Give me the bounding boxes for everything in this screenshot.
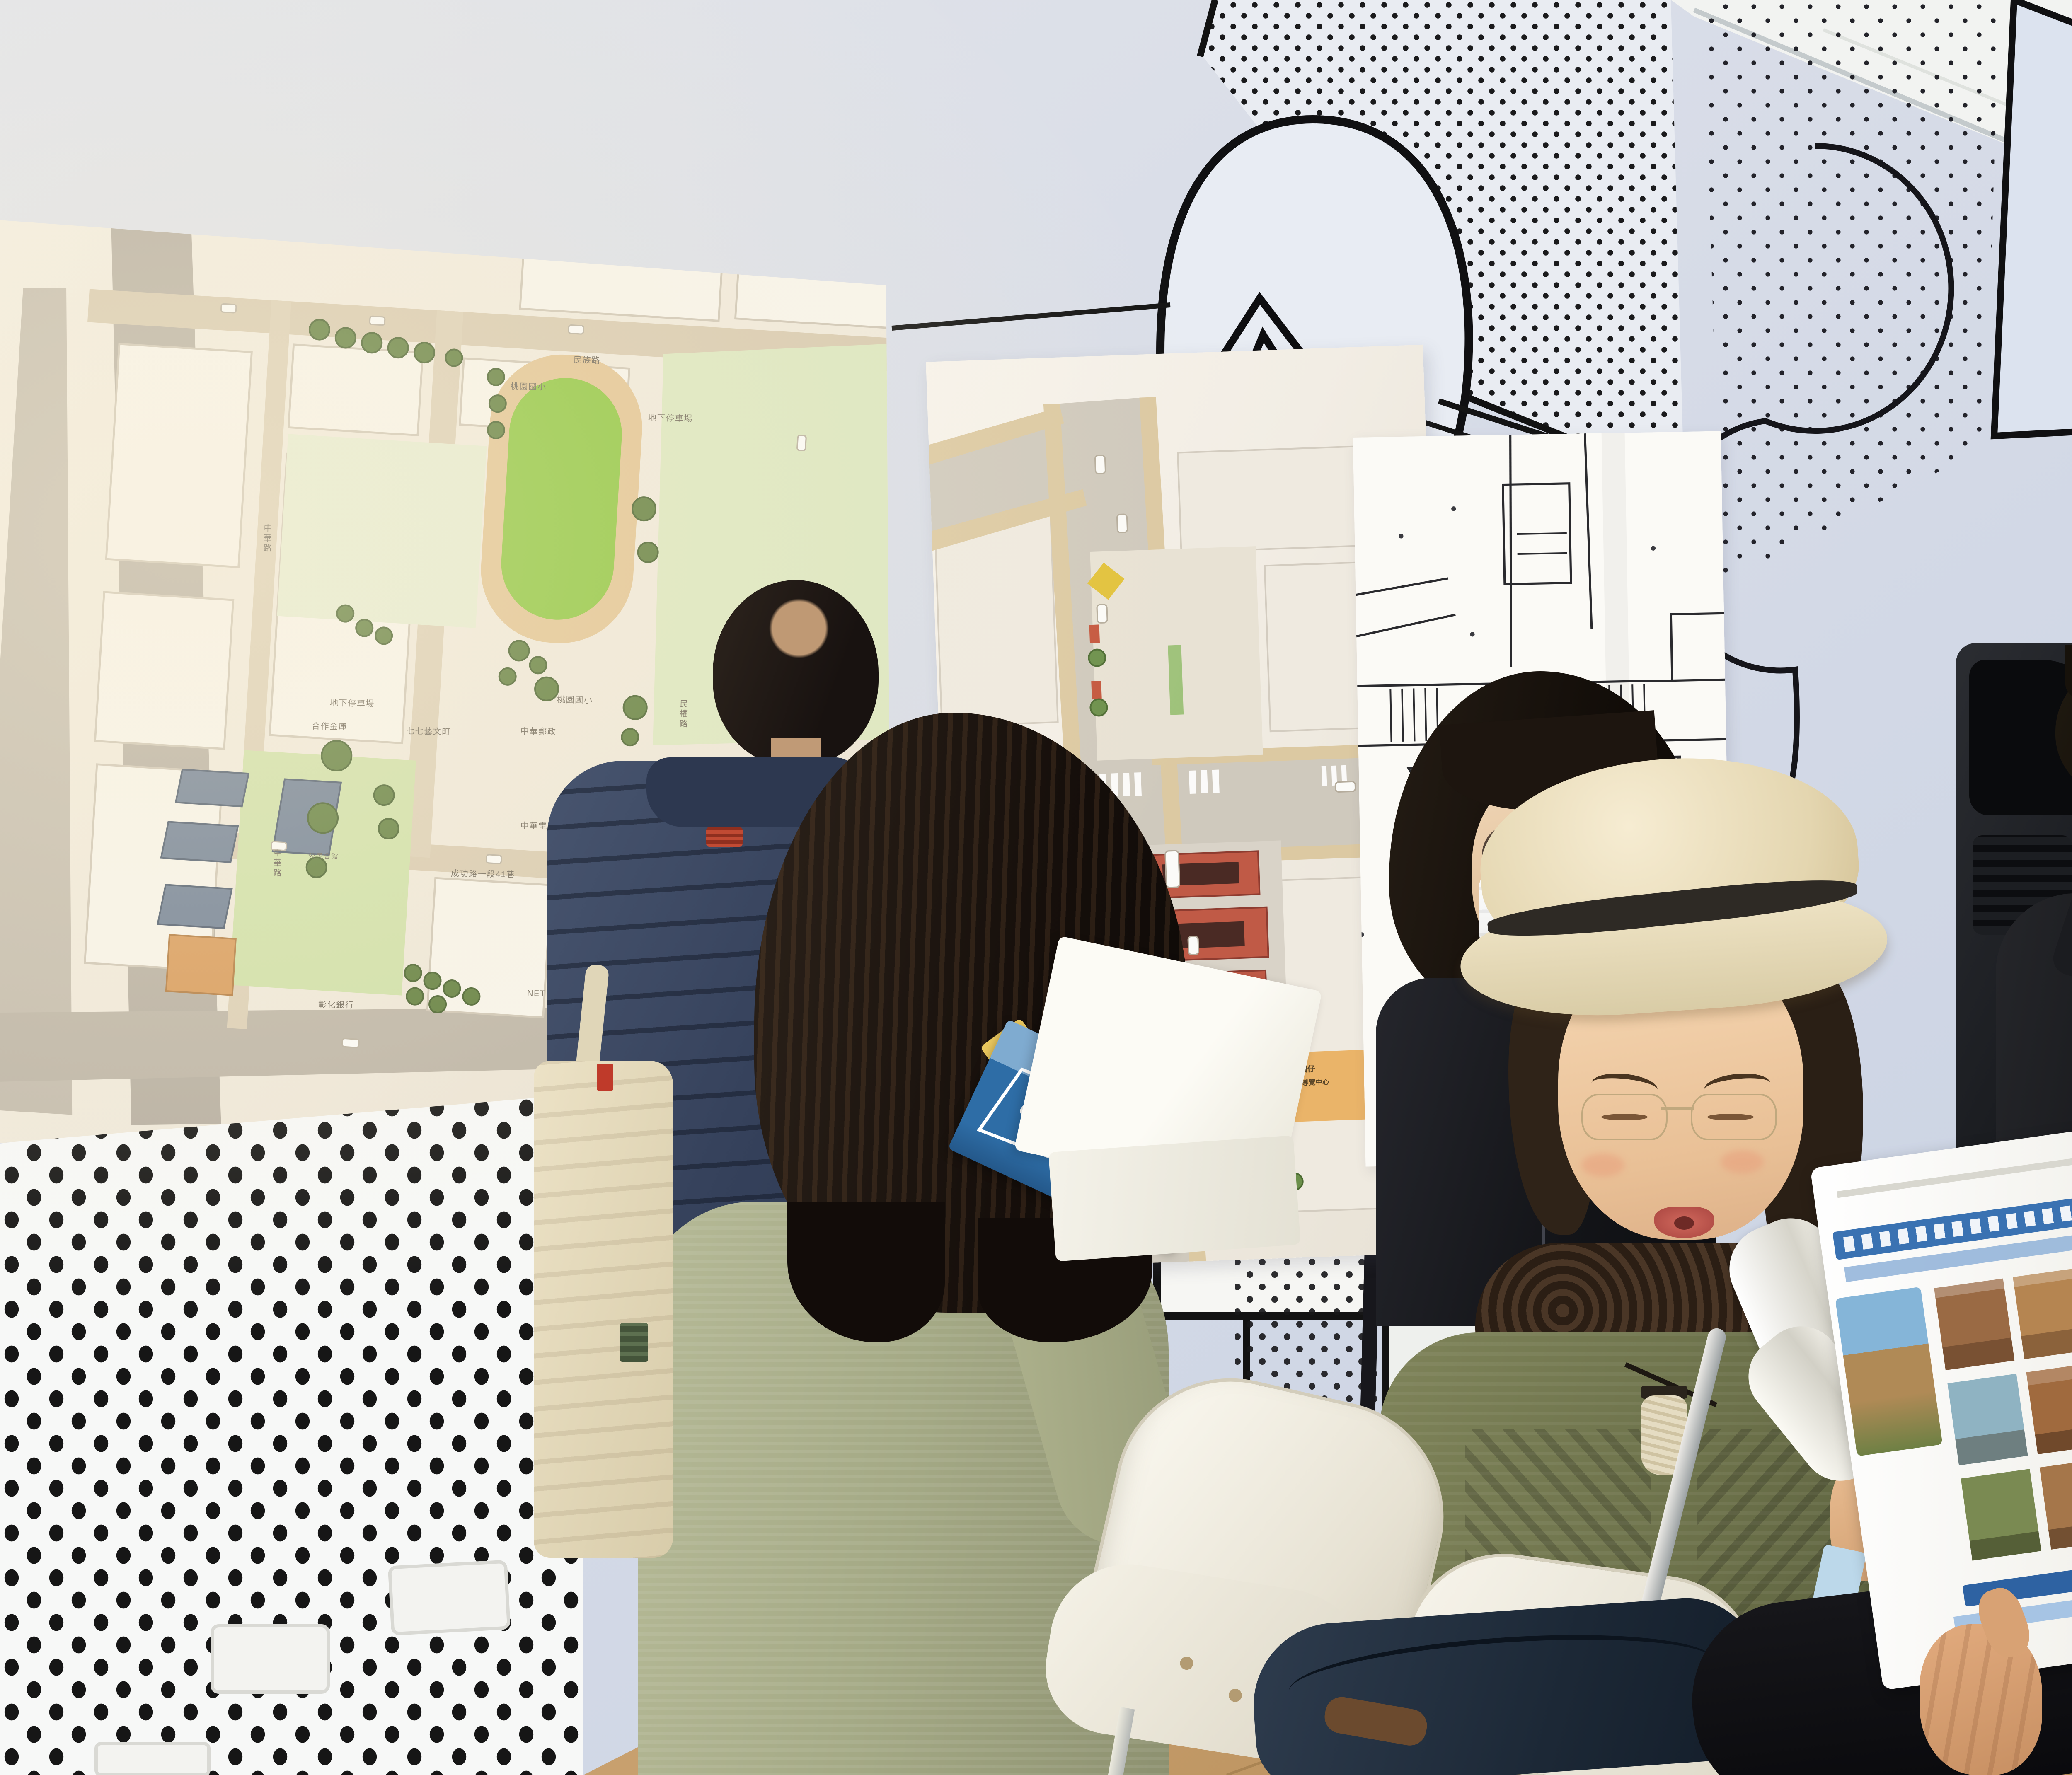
tote-red-tag [597,1064,613,1091]
photo [1934,1279,2014,1370]
map-label: 中華路 [271,849,283,878]
map-label: 地下停車場 [648,412,693,425]
map-label: 彰化銀行 [318,999,354,1011]
bucket-hat [1436,734,1902,1038]
tote-label [620,1323,648,1362]
tote-body [534,1061,673,1558]
tote-bag [534,1061,673,1558]
blush [1721,1150,1764,1173]
outlet-plate [390,1562,509,1634]
pamphlet-page [1048,1135,1301,1262]
collar [2049,871,2072,1005]
photo [1835,1287,1942,1456]
photo-frame: 民族路 中華路 中華路 民權路 中正路 中正路 成功路一段41巷 成功路 桃園國… [0,0,2072,1775]
magazine-page [1810,1110,2072,1690]
photo [2026,1363,2072,1454]
map-label: 七七藝文町 [406,725,451,738]
map-label: 成功路一段41巷 [451,868,516,881]
map-label: NET [527,989,546,1000]
map-label: 民族路 [574,354,600,366]
blush [1581,1154,1624,1177]
mouth [1674,1216,1694,1230]
map-label: 桃園國小 [511,381,547,393]
map-label: 公民會館 [308,851,339,862]
eye [1707,1114,1754,1120]
map-label: 合作金庫 [312,721,348,733]
outlet-plate [96,1744,209,1775]
photo [2040,1458,2072,1549]
map-label: 地下停車場 [330,697,375,710]
eye [1601,1114,1648,1120]
map-label: 中華路 [261,524,274,554]
photo [1947,1374,2028,1465]
photo [1961,1469,2041,1560]
outlet-plate [212,1626,328,1692]
rule-line [1837,1157,2072,1198]
glasses-bridge [1661,1107,1694,1110]
exhibition-scene: 民族路 中華路 中華路 民權路 中正路 中正路 成功路一段41巷 成功路 桃園國… [0,0,2072,1775]
photo [2013,1267,2072,1359]
lips [1654,1207,1714,1238]
